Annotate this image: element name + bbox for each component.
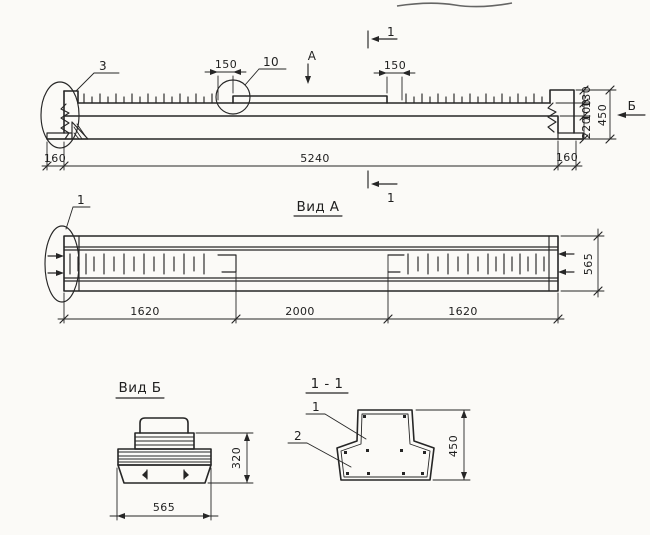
section-mark-top-arrow <box>371 36 379 42</box>
view-b-arrowhead <box>617 112 626 118</box>
end-lower-band <box>118 449 211 465</box>
dim-450-section: 450 <box>447 435 460 457</box>
end-top-block <box>140 418 188 433</box>
end-upper-band-lines <box>135 437 194 445</box>
plan-edge-lines <box>64 247 558 281</box>
view-a-arrowhead <box>305 76 311 84</box>
stirrup-ticks-left <box>84 94 212 103</box>
scan-artifact-line <box>397 3 512 7</box>
callout-3-leader <box>76 73 119 91</box>
break-line-right <box>548 103 556 132</box>
section-view-1-1: 1 - 1 1 2 450 <box>288 376 470 480</box>
callout-1-label: 1 <box>77 193 85 207</box>
section-mark-bottom-lines <box>368 171 397 188</box>
callout-1-leader <box>66 207 90 229</box>
section-outline <box>337 410 434 480</box>
beam-right-end-step <box>550 90 574 133</box>
elevation-view: 3 10 150 150 А 1 1 130 100 220 450 Б 160… <box>41 25 645 205</box>
dim-220: 220 <box>580 117 593 139</box>
dim-5240: 5240 <box>300 152 330 165</box>
end-view-title: Вид Б <box>119 380 162 396</box>
dim-320: 320 <box>230 447 243 469</box>
section-callout-2: 2 <box>294 429 302 443</box>
blueprint-page: 3 10 150 150 А 1 1 130 100 220 450 Б 160… <box>0 0 650 535</box>
detail-balloon-3 <box>41 82 79 148</box>
end-base-trapezoid <box>118 465 211 483</box>
dim-565-end: 565 <box>153 501 175 514</box>
section-cover-line <box>341 414 430 477</box>
drawing-canvas: 3 10 150 150 А 1 1 130 100 220 450 Б 160… <box>0 0 650 535</box>
plan-left-bar-arrows <box>56 253 64 276</box>
plan-outline <box>64 236 558 291</box>
dim-150-right: 150 <box>384 59 406 72</box>
view-b-letter: Б <box>628 99 637 113</box>
dim-450-elevation: 450 <box>596 104 609 126</box>
dim-2000: 2000 <box>285 305 315 318</box>
dim-160-left: 160 <box>44 152 66 165</box>
end-anchor-mark-left <box>142 470 147 479</box>
section-mark-bottom-arrow <box>371 181 379 187</box>
end-anchor-mark-right <box>184 470 189 479</box>
dim-160-right: 160 <box>556 151 578 164</box>
section-mark-bottom-label: 1 <box>387 191 395 205</box>
callout-10-label: 10 <box>263 55 279 69</box>
section-title: 1 - 1 <box>311 376 344 392</box>
plan-title: Вид А <box>297 199 340 215</box>
stirrup-ticks-right <box>406 94 542 103</box>
beam-flange-top-line <box>64 116 558 133</box>
section-mark-top-label: 1 <box>387 25 395 39</box>
plan-stirrups-left <box>70 254 204 274</box>
plan-zone-brackets <box>218 255 404 272</box>
beam-raised-middle-block <box>233 96 387 103</box>
plan-right-bar-arrows <box>558 251 566 275</box>
view-a-letter: А <box>308 49 317 63</box>
callout-3-label: 3 <box>99 59 107 73</box>
dim-1620-right: 1620 <box>448 305 478 318</box>
plan-stirrups-right <box>408 254 544 274</box>
break-line-left <box>61 104 69 139</box>
plan-view: Вид А 1 1620 2000 1620 565 <box>45 193 604 323</box>
dim-1620-left: 1620 <box>130 305 160 318</box>
end-lower-band-lines <box>118 452 211 462</box>
dim-150-left: 150 <box>215 58 237 71</box>
end-view-b: Вид Б 320 565 <box>110 380 253 520</box>
section-callout-1: 1 <box>312 400 320 414</box>
dim-565-plan: 565 <box>582 253 595 275</box>
callout-10-leader <box>245 69 286 85</box>
detail-balloon-1 <box>45 226 79 302</box>
